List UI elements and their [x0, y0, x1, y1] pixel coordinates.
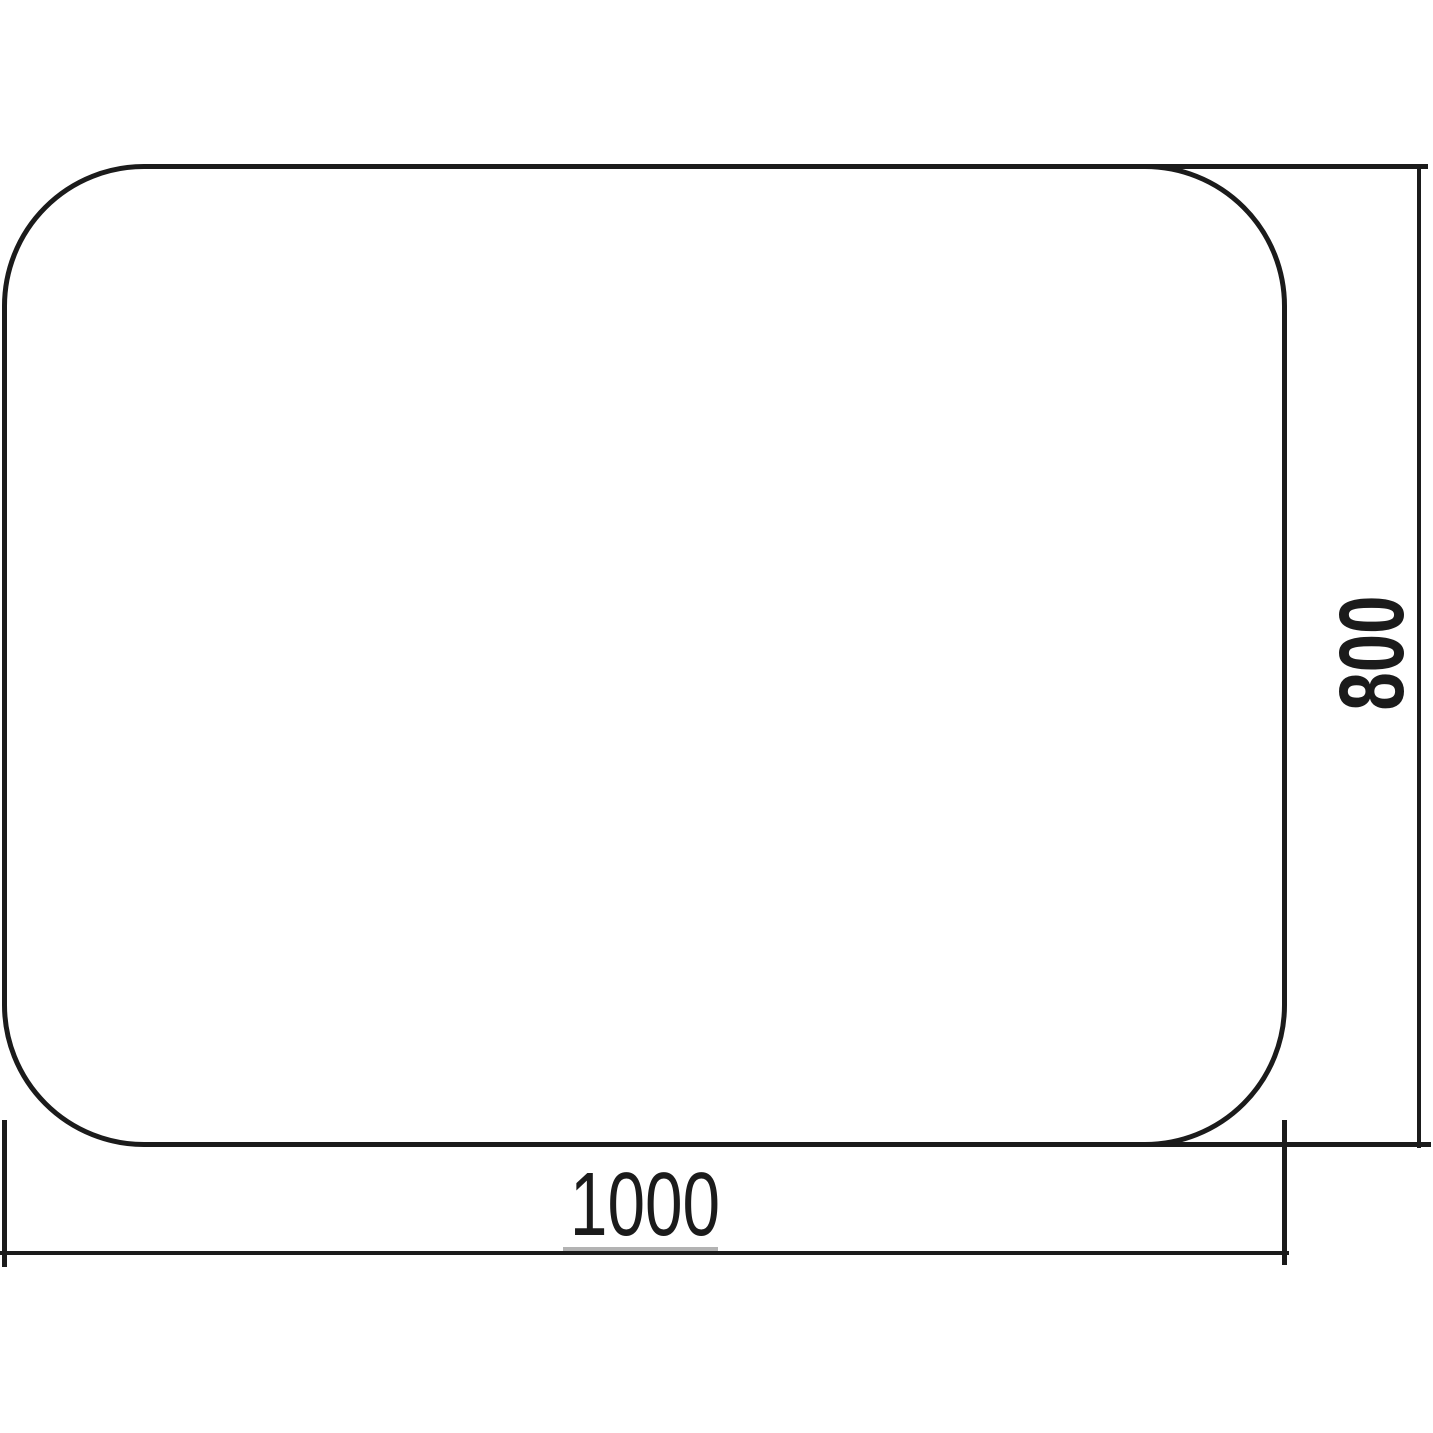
panel-outline	[2, 164, 1287, 1147]
width-dimension-label: 1000	[533, 1160, 758, 1250]
left-edge-extension-line	[2, 1120, 7, 1267]
right-edge-extension-line	[1282, 1120, 1287, 1265]
top-extension-line	[1100, 164, 1428, 169]
dimension-drawing-canvas: 800 1000	[0, 0, 1433, 1433]
height-dimension-label: 800	[1326, 541, 1418, 766]
bottom-extension-line	[1100, 1142, 1431, 1147]
